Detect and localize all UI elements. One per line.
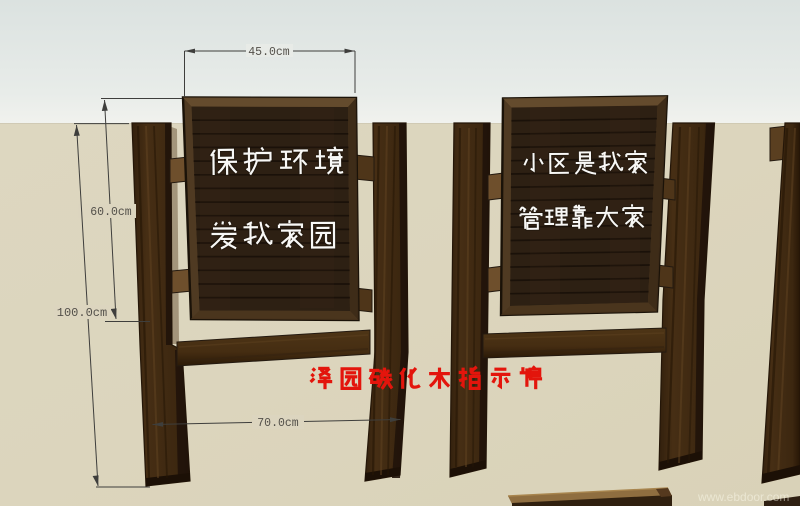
svg-text:100.0cm: 100.0cm [57,306,107,320]
svg-text:70.0cm: 70.0cm [257,417,299,430]
svg-text:www.ebdoor.com: www.ebdoor.com [697,490,789,504]
svg-text:45.0cm: 45.0cm [248,46,290,59]
svg-text:60.0cm: 60.0cm [90,206,132,219]
